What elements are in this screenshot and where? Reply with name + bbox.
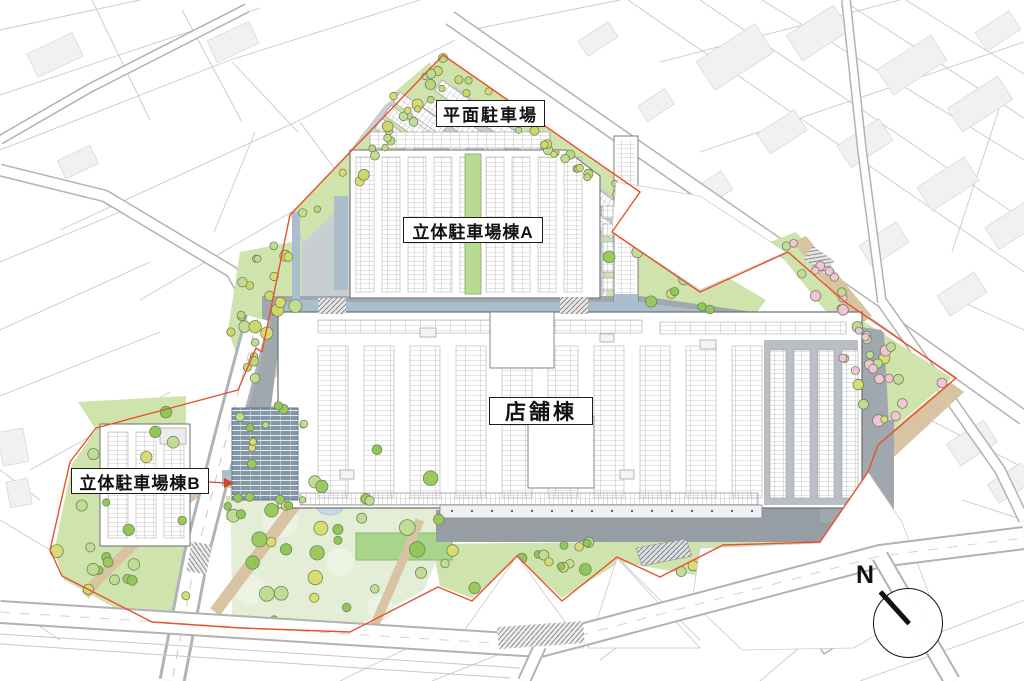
label-store-building: 店舗棟 (489, 397, 593, 425)
label-parking-structure-a: 立体駐車場棟A (403, 217, 543, 243)
north-label: N (845, 561, 885, 590)
site-plan-page: 平面駐車場 立体駐車場棟A 店舗棟 立体駐車場棟B N (0, 0, 1024, 681)
label-parking-structure-b: 立体駐車場棟B (71, 468, 209, 494)
label-surface-parking: 平面駐車場 (436, 100, 545, 127)
